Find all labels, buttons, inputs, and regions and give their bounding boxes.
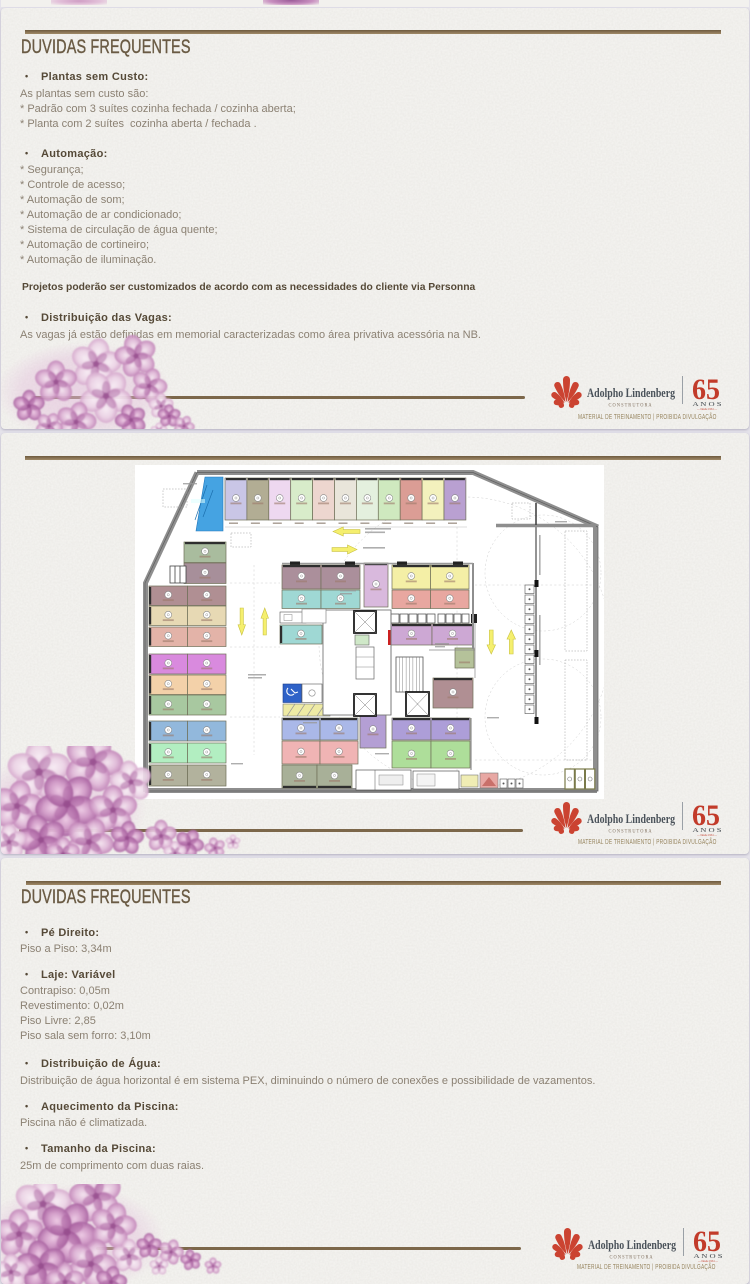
svg-text:Adolpho Lindenberg: Adolpho Lindenberg [588,1237,676,1252]
svg-text:— Desde 1954 —: — Desde 1954 — [696,833,717,837]
svg-text:— Desde 1954 —: — Desde 1954 — [696,407,717,411]
svg-text:Adolpho Lindenberg: Adolpho Lindenberg [587,385,675,400]
svg-text:C O N S T R U T O R A: C O N S T R U T O R A [609,404,652,409]
svg-text:— Desde 1954 —: — Desde 1954 — [697,1259,718,1263]
svg-text:C O N S T R U T O R A: C O N S T R U T O R A [610,1256,653,1261]
svg-text:C O N S T R U T O R A: C O N S T R U T O R A [609,830,652,835]
svg-text:Adolpho Lindenberg: Adolpho Lindenberg [587,811,675,826]
